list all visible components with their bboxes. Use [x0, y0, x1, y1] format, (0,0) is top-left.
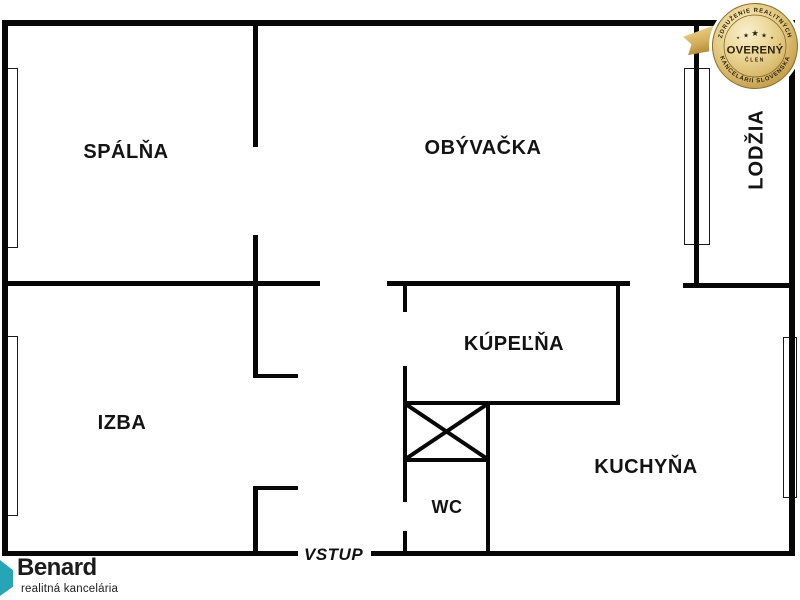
- floor-plan: SPÁLŇA OBÝVAČKA LODŽIA IZBA KÚPEĽŇA WC K…: [0, 0, 800, 600]
- wall-izba-hall: [253, 486, 258, 556]
- star-icon: ★: [751, 28, 759, 38]
- badge-title: OVERENÝ: [727, 44, 784, 57]
- wall-loggia-bottom: [683, 283, 795, 288]
- izba-door-jamb-bottom: [253, 486, 298, 490]
- shaft-box: [403, 401, 490, 462]
- wall-bedroom-living-lower: [253, 235, 258, 378]
- wall-outer-top: [2, 20, 793, 26]
- wall-middle-left: [2, 281, 320, 286]
- room-label-obyvacka: OBÝVAČKA: [393, 137, 573, 160]
- room-label-lodzia: LODŽIA: [746, 90, 769, 210]
- logo-name: Benard: [17, 556, 97, 580]
- star-icon: ★: [761, 32, 767, 40]
- wall-bedroom-living-upper: [253, 20, 258, 147]
- logo-tagline: realitná kancelária: [21, 583, 118, 595]
- wall-outer-right: [789, 20, 795, 556]
- room-label-kupelna: KÚPEĽŇA: [424, 333, 604, 356]
- wall-bath-left-lower: [403, 366, 407, 403]
- room-label-wc: WC: [407, 497, 487, 518]
- entrance-label: VSTUP: [304, 545, 363, 565]
- wall-outer-bottom-right: [371, 551, 793, 556]
- wall-wc-left-lower: [403, 531, 407, 556]
- shaft-cross-icon: [407, 405, 486, 458]
- room-label-izba: IZBA: [32, 412, 212, 435]
- izba-door-jamb-top: [253, 374, 298, 378]
- star-icon: ★: [770, 35, 774, 40]
- room-label-spalna: SPÁLŇA: [36, 141, 216, 164]
- badge-text: ZDRUŽENIE REALITNÝCH KANCELÁRIÍ SLOVENSK…: [705, 0, 800, 96]
- room-label-kuchyna: KUCHYŇA: [556, 456, 736, 479]
- wall-wc-left-upper: [403, 462, 407, 502]
- wall-outer-left: [2, 20, 8, 556]
- wall-bath-left-upper: [403, 283, 407, 312]
- star-icon: ★: [736, 35, 740, 40]
- wall-living-loggia: [694, 20, 699, 286]
- wall-middle-center: [387, 281, 630, 286]
- badge-subtitle: ČLEN: [745, 57, 765, 64]
- star-icon: ★: [743, 32, 749, 40]
- wall-bath-right: [616, 283, 620, 405]
